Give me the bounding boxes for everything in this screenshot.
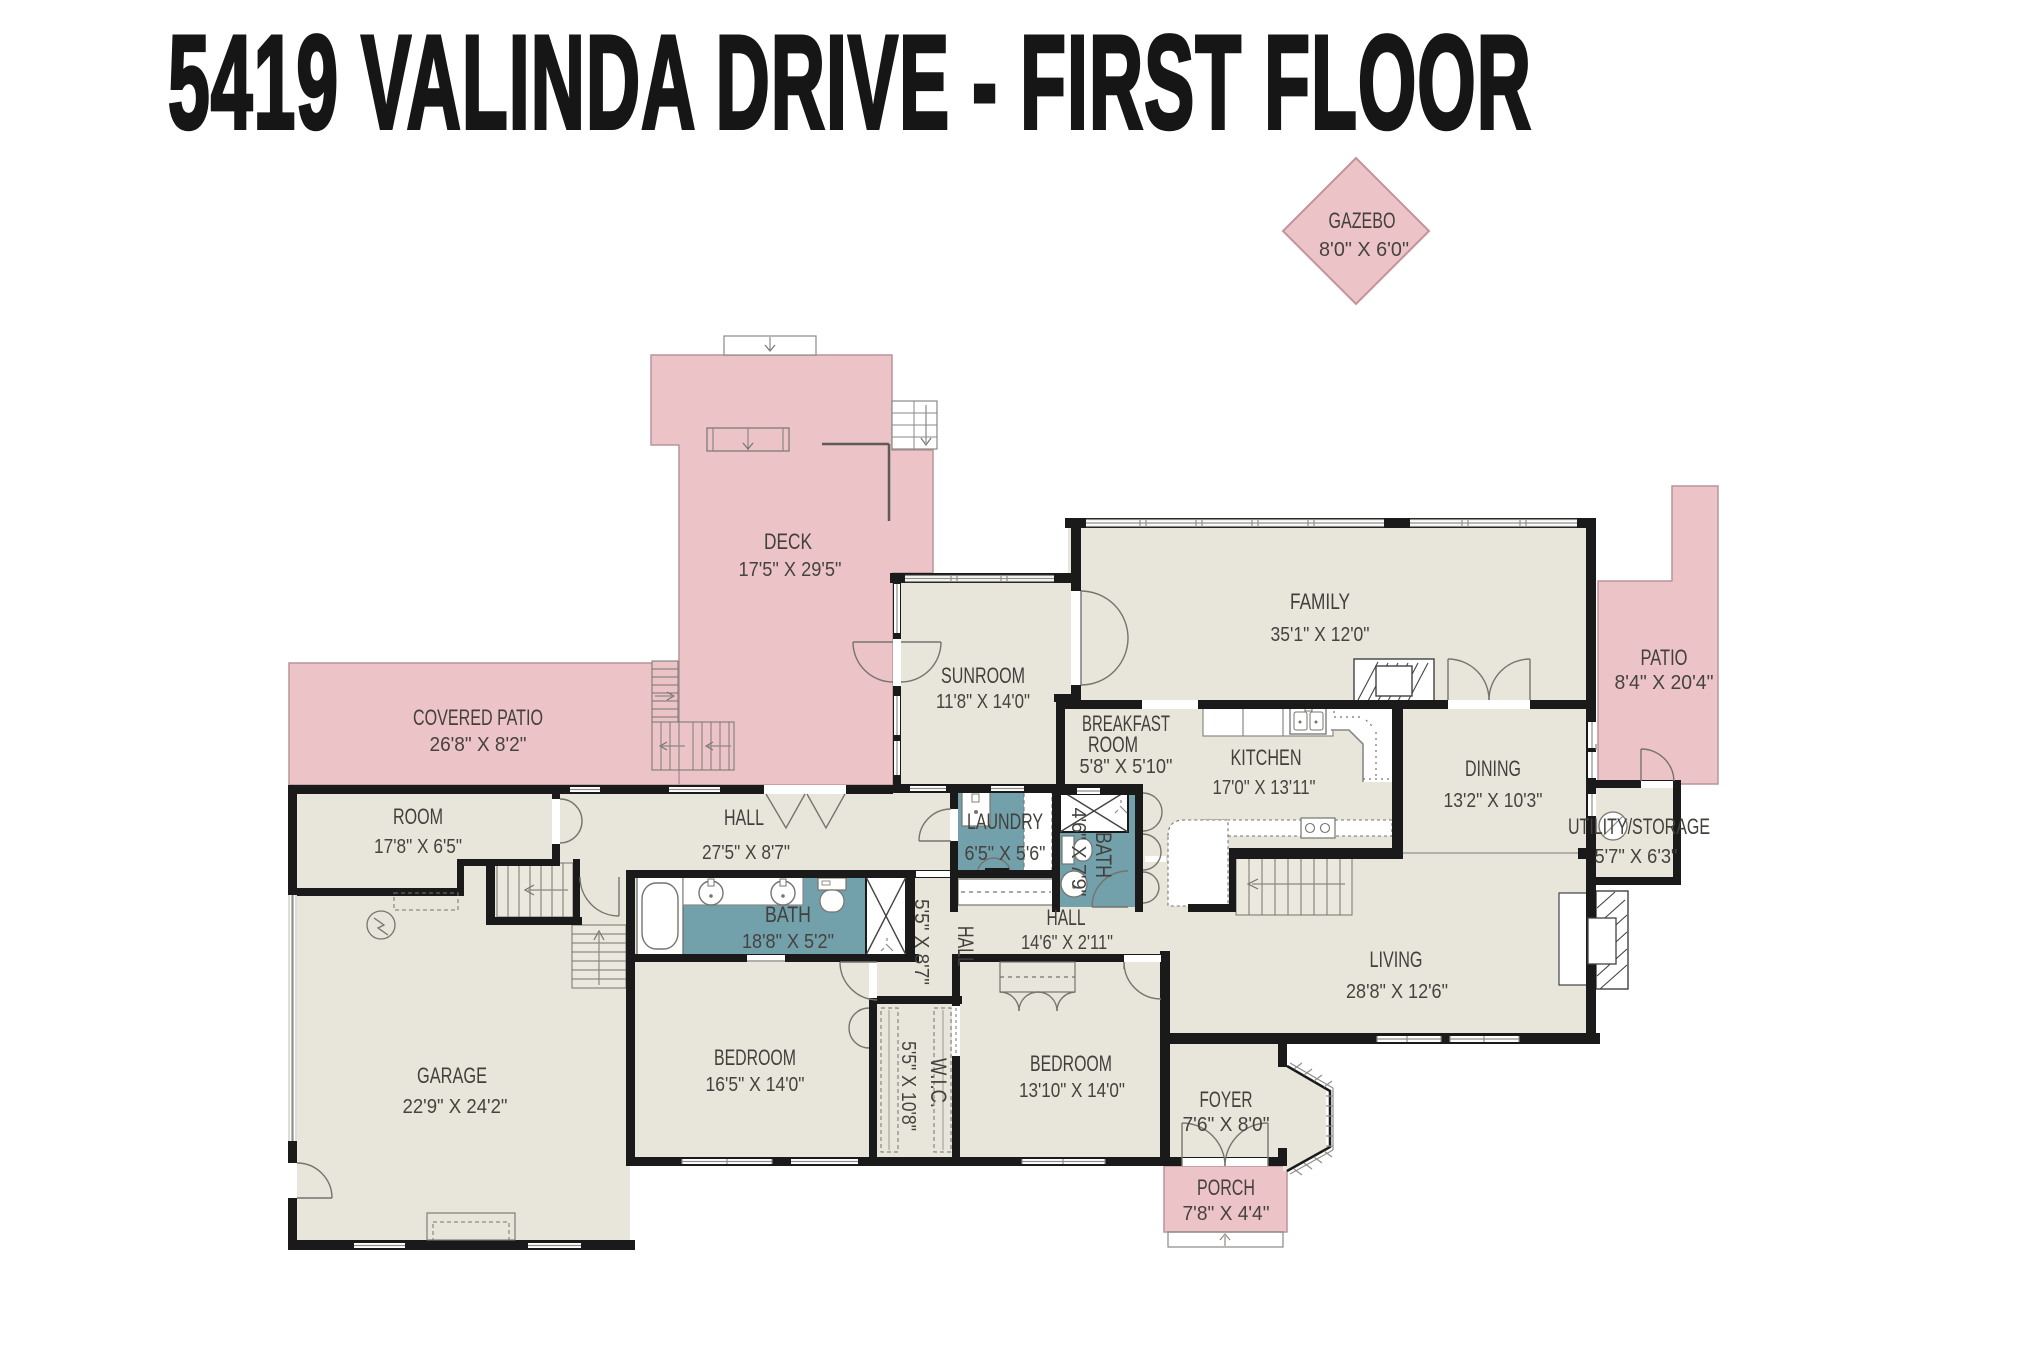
svg-text:BATH: BATH [765, 902, 811, 927]
svg-text:5'7" X 6'3": 5'7" X 6'3" [1595, 846, 1678, 868]
svg-text:LIVING: LIVING [1370, 947, 1423, 972]
svg-text:11'8" X 14'0": 11'8" X 14'0" [936, 691, 1030, 713]
svg-text:BATH: BATH [1091, 832, 1116, 878]
svg-text:KITCHEN: KITCHEN [1231, 745, 1302, 770]
svg-text:6'5" X 5'6": 6'5" X 5'6" [965, 843, 1046, 865]
svg-text:5'5" X 8'7": 5'5" X 8'7" [910, 899, 932, 985]
svg-text:18'8" X 5'2": 18'8" X 5'2" [742, 931, 834, 953]
svg-text:17'8" X 6'5": 17'8" X 6'5" [374, 836, 462, 858]
svg-text:HALL: HALL [1047, 905, 1086, 930]
svg-text:28'8" X 12'6": 28'8" X 12'6" [1346, 981, 1448, 1003]
svg-text:27'5" X 8'7": 27'5" X 8'7" [702, 842, 790, 864]
svg-text:17'0" X 13'11": 17'0" X 13'11" [1213, 777, 1316, 799]
svg-text:HALL: HALL [724, 805, 764, 830]
svg-text:BEDROOM: BEDROOM [1030, 1051, 1112, 1076]
svg-text:8'4" X 20'4": 8'4" X 20'4" [1615, 672, 1714, 694]
svg-text:8'0" X 6'0": 8'0" X 6'0" [1319, 239, 1409, 261]
svg-text:13'10" X 14'0": 13'10" X 14'0" [1019, 1080, 1125, 1102]
svg-text:22'9" X 24'2": 22'9" X 24'2" [403, 1096, 508, 1118]
svg-text:LAUNDRY: LAUNDRY [967, 809, 1043, 834]
svg-text:PORCH: PORCH [1197, 1175, 1255, 1200]
svg-text:BEDROOM: BEDROOM [714, 1045, 796, 1070]
svg-text:COVERED PATIO: COVERED PATIO [413, 705, 543, 730]
svg-text:GAZEBO: GAZEBO [1329, 208, 1396, 233]
svg-text:DINING: DINING [1465, 756, 1521, 781]
svg-text:4'6" X 7'9": 4'6" X 7'9" [1067, 808, 1089, 897]
svg-text:5419 VALINDA DRIVE - FIRST FLO: 5419 VALINDA DRIVE - FIRST FLOOR [168, 9, 1532, 157]
svg-text:17'5" X 29'5": 17'5" X 29'5" [739, 559, 842, 581]
svg-text:FOYER: FOYER [1200, 1087, 1253, 1112]
svg-text:5'5" X 10'8": 5'5" X 10'8" [897, 1041, 919, 1131]
svg-text:13'2" X 10'3": 13'2" X 10'3" [1444, 790, 1543, 812]
svg-text:GARAGE: GARAGE [417, 1063, 487, 1088]
svg-text:16'5" X 14'0": 16'5" X 14'0" [706, 1074, 805, 1096]
svg-text:14'6" X 2'11": 14'6" X 2'11" [1021, 932, 1113, 954]
svg-text:5'8" X 5'10": 5'8" X 5'10" [1080, 756, 1173, 778]
svg-text:W.I.C.: W.I.C. [926, 1058, 951, 1108]
svg-text:7'8" X 4'4": 7'8" X 4'4" [1183, 1203, 1270, 1225]
svg-text:26'8" X 8'2": 26'8" X 8'2" [430, 734, 527, 756]
svg-text:ROOM: ROOM [1088, 732, 1138, 757]
svg-text:PATIO: PATIO [1641, 645, 1688, 670]
svg-text:HALL: HALL [953, 926, 978, 966]
svg-text:FAMILY: FAMILY [1290, 589, 1350, 614]
svg-text:DECK: DECK [764, 529, 812, 554]
svg-text:SUNROOM: SUNROOM [941, 663, 1025, 688]
svg-text:UTILITY/STORAGE: UTILITY/STORAGE [1568, 814, 1710, 839]
svg-text:35'1" X 12'0": 35'1" X 12'0" [1271, 624, 1370, 646]
svg-text:ROOM: ROOM [393, 804, 443, 829]
svg-text:7'6" X 8'0": 7'6" X 8'0" [1183, 1114, 1270, 1136]
